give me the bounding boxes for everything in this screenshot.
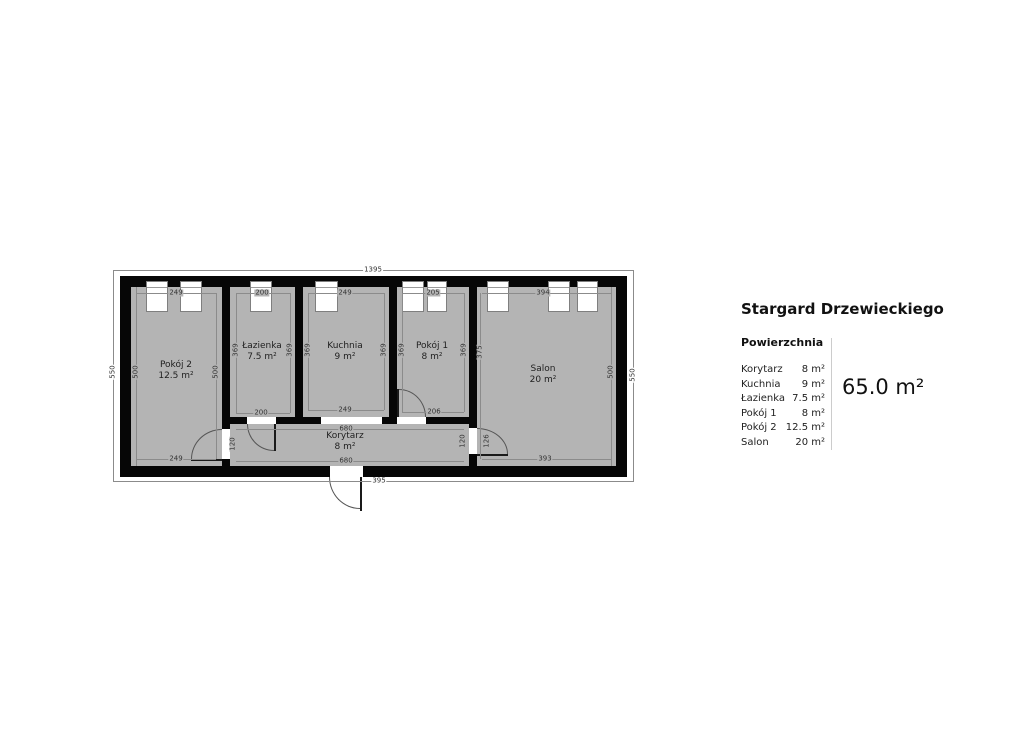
room-name: Łazienka [242, 341, 282, 352]
window [180, 281, 202, 312]
room-label-salon: Salon 20 m² [530, 364, 557, 386]
room-name: Pokój 2 [741, 421, 777, 436]
vertical-divider [831, 338, 832, 450]
room-name: Pokój 2 [158, 360, 193, 371]
dim-label-top-kuchnia: 249 [337, 290, 352, 297]
table-row: Pokój 1 8 m² [741, 407, 825, 422]
dim-label-outer-right: 550 [630, 367, 637, 382]
door-opening-salon [469, 428, 477, 454]
total-area-value: 65.0 m² [842, 375, 924, 399]
wall-kuchnia-right [389, 287, 397, 424]
wall-exterior-right [616, 276, 627, 477]
dim-label-pokoj1-left: 369 [399, 342, 406, 357]
room-name: Kuchnia [741, 378, 780, 393]
table-row: Łazienka 7.5 m² [741, 392, 825, 407]
dim-label-lazienka-left: 369 [233, 342, 240, 357]
window-sash [316, 287, 337, 288]
door-leaf-entry [360, 477, 362, 511]
dim-label-door-salon-a: 120 [460, 433, 467, 448]
dim-label-bottom-salon: 393 [537, 456, 552, 463]
window-sash [181, 287, 201, 288]
dim-label-bottom-lazienka: 200 [253, 410, 268, 417]
dim-label-outer-left: 550 [110, 364, 117, 379]
door-opening-lazienka [247, 417, 276, 424]
room-area: 8 m² [802, 363, 825, 378]
room-area: 12.5 m² [158, 371, 193, 382]
dim-label-kuchnia-left: 369 [305, 342, 312, 357]
dim-label-top-pokoj1: 205 [425, 290, 440, 297]
window-sash [578, 287, 597, 288]
table-row: Pokój 2 12.5 m² [741, 421, 825, 436]
wall-exterior-left [120, 276, 131, 477]
room-label-pokoj1: Pokój 1 8 m² [416, 341, 448, 363]
dim-label-top-salon: 394 [535, 290, 550, 297]
dim-label-overall-bottom: 395 [371, 478, 386, 485]
window [577, 281, 598, 312]
window-sash [488, 287, 508, 288]
dim-label-door-pokoj1: 206 [426, 409, 441, 416]
dim-label-door-pokoj2: 120 [230, 436, 237, 451]
room-name: Salon [530, 364, 557, 375]
room-area: 9 m² [327, 352, 363, 363]
dim-label-bottom-pokoj2: 249 [168, 456, 183, 463]
window-sash [147, 287, 167, 288]
room-name: Łazienka [741, 392, 785, 407]
room-label-lazienka: Łazienka 7.5 m² [242, 341, 282, 363]
areas-section-label: Powierzchnia [741, 336, 823, 349]
room-area: 8 m² [802, 407, 825, 422]
door-opening-pokoj1 [397, 417, 426, 424]
wall-exterior-bottom [120, 466, 627, 477]
room-area: 8 m² [326, 442, 363, 453]
window [487, 281, 509, 312]
window-sash [403, 287, 423, 288]
room-label-korytarz: Korytarz 8 m² [326, 431, 363, 453]
room-name: Korytarz [741, 363, 783, 378]
dim-label-pokoj2-right: 500 [213, 364, 220, 379]
floorplan-page: 1395 395 550 550 500 500 249 200 249 205… [0, 0, 1024, 750]
dim-label-overall-top: 1395 [363, 267, 383, 274]
room-name: Korytarz [326, 431, 363, 442]
passage-opening-kuchnia [321, 417, 382, 424]
room-name: Pokój 1 [741, 407, 777, 422]
table-row: Korytarz 8 m² [741, 363, 825, 378]
room-area: 7.5 m² [792, 392, 825, 407]
dim-label-top-pokoj2: 249 [168, 290, 183, 297]
room-area: 9 m² [802, 378, 825, 393]
dim-label-salon-left: 375 [477, 344, 484, 359]
dim-label-top-lazienka: 200 [254, 290, 269, 297]
room-area: 20 m² [530, 375, 557, 386]
dim-label-bottom-kuchnia: 249 [337, 407, 352, 414]
wall-lazienka-right [295, 287, 303, 424]
window [146, 281, 168, 312]
window [402, 281, 424, 312]
dim-label-korytarz-bottom: 680 [338, 458, 353, 465]
window [315, 281, 338, 312]
room-area: 7.5 m² [242, 352, 282, 363]
room-area: 8 m² [416, 352, 448, 363]
door-opening-entry [330, 466, 363, 477]
dim-label-lazienka-right: 369 [287, 342, 294, 357]
table-row: Salon 20 m² [741, 436, 825, 451]
window [250, 281, 272, 312]
dim-label-door-salon-b: 126 [484, 433, 491, 448]
room-label-pokoj2: Pokój 2 12.5 m² [158, 360, 193, 382]
dim-label-kuchnia-right: 369 [381, 342, 388, 357]
room-label-kuchnia: Kuchnia 9 m² [327, 341, 363, 363]
dim-line [480, 293, 481, 459]
dim-label-inner-left: 500 [133, 364, 140, 379]
areas-table: Korytarz 8 m² Kuchnia 9 m² Łazienka 7.5 … [741, 363, 825, 451]
door-leaf-salon [477, 454, 508, 456]
table-row: Kuchnia 9 m² [741, 378, 825, 393]
room-name: Pokój 1 [416, 341, 448, 352]
room-area: 20 m² [795, 436, 825, 451]
room-area: 12.5 m² [786, 421, 825, 436]
window [427, 281, 447, 312]
window-sash [549, 287, 569, 288]
dim-label-inner-right: 500 [608, 364, 615, 379]
dim-label-pokoj1-right: 369 [461, 342, 468, 357]
room-name: Kuchnia [327, 341, 363, 352]
page-title: Stargard Drzewieckiego [741, 300, 944, 318]
room-name: Salon [741, 436, 769, 451]
window [548, 281, 570, 312]
